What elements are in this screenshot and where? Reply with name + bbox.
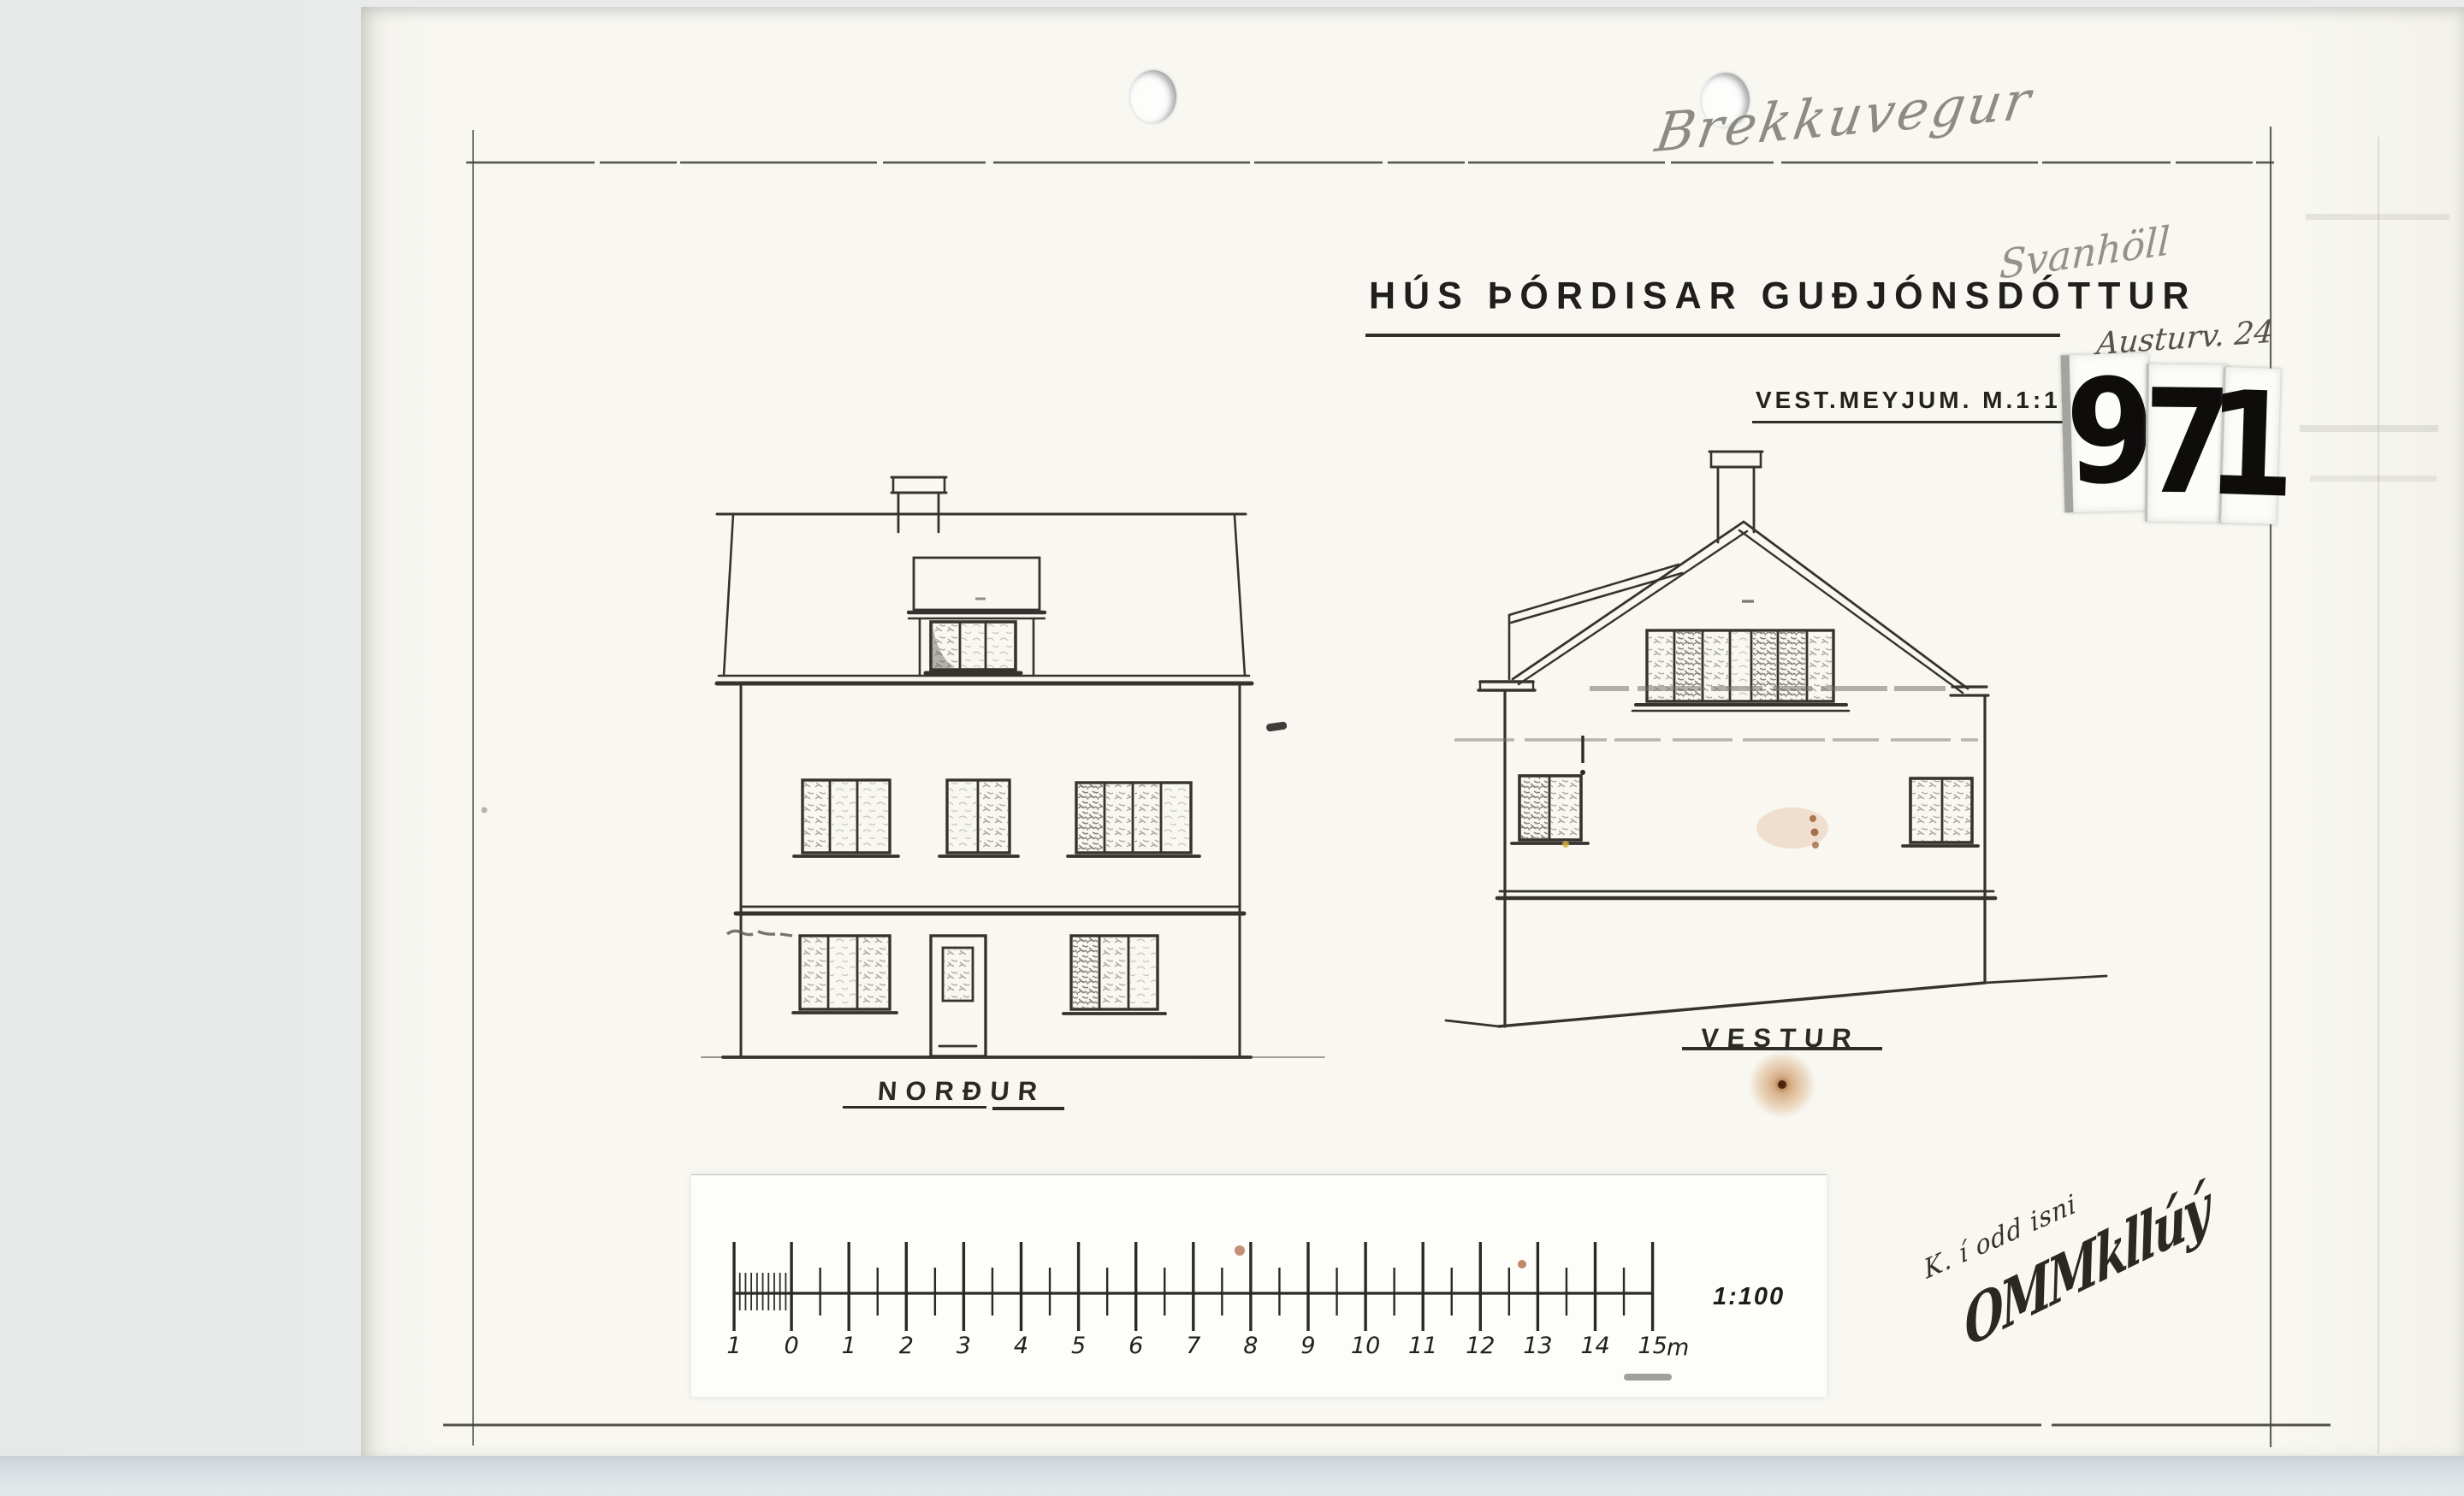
ruler-tick-label: 1 xyxy=(842,1333,856,1359)
drawing-subtitle: VEST.MEYJUM. M.1:100 xyxy=(1756,387,2094,414)
north-elevation-label: NORÐUR xyxy=(877,1076,1047,1107)
ruler-tick-label: 4 xyxy=(1014,1333,1028,1359)
west-window-shading xyxy=(1521,632,1970,841)
west-label-underline xyxy=(1682,1047,1882,1050)
ruler-tick-label: 6 xyxy=(1128,1333,1143,1359)
ruler-tick-label: 1 xyxy=(726,1333,741,1359)
ruler-tick-label: 0 xyxy=(785,1333,799,1359)
ruler-tick-label: 9 xyxy=(1300,1333,1315,1359)
ruler-tick-label: 3 xyxy=(957,1333,971,1359)
drawing-title: HÚS ÞÓRDISAR GUÐJÓNSDÓTTUR xyxy=(1369,275,2196,318)
ruler-tick-label: 2 xyxy=(899,1333,914,1359)
north-label-underline-a xyxy=(843,1106,986,1109)
scale-bar-ticks xyxy=(734,1242,1653,1331)
ruler-tick-label: 10 xyxy=(1351,1333,1380,1359)
subtitle-underline xyxy=(1752,421,2084,423)
archive-number-plate-1: 9 xyxy=(2061,353,2153,513)
ruler-tick-label: 8 xyxy=(1243,1333,1258,1359)
archive-digit: 1 xyxy=(2204,361,2298,530)
ruler-tick-label: 11 xyxy=(1408,1333,1437,1359)
scale-ratio: 1:100 xyxy=(1713,1283,1785,1311)
ruler-tick-label: 12 xyxy=(1466,1333,1495,1359)
ruler-tick-label: 14 xyxy=(1580,1333,1609,1359)
scanned-sheet: HÚS ÞÓRDISAR GUÐJÓNSDÓTTUR VEST.MEYJUM. … xyxy=(0,0,2464,1496)
ruler-tick-label: 15 xyxy=(1638,1333,1667,1359)
ruler-tick-label: 7 xyxy=(1186,1333,1200,1359)
title-underline xyxy=(1365,334,2060,337)
ruler-tick-label: 13 xyxy=(1523,1333,1552,1359)
scale-bar-unit: m xyxy=(1667,1334,1689,1361)
north-elevation-drawing xyxy=(702,477,1324,1057)
north-window-shading xyxy=(802,624,1189,1008)
ruler-tick-label: 5 xyxy=(1071,1333,1086,1359)
north-label-underline-b xyxy=(992,1107,1064,1110)
archive-number-plate-3: 1 xyxy=(2218,367,2281,524)
